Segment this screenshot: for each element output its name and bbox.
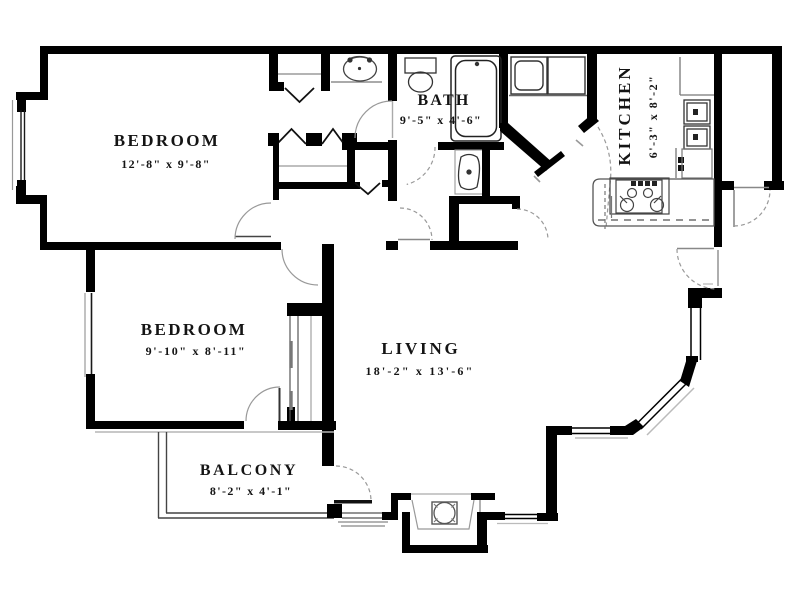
svg-text:6'-3" x 8'-2": 6'-3" x 8'-2" <box>646 75 660 158</box>
svg-text:18'-2" x 13'-6": 18'-2" x 13'-6" <box>366 364 475 378</box>
svg-text:9'-10" x 8'-11": 9'-10" x 8'-11" <box>146 344 247 358</box>
svg-text:LIVING: LIVING <box>381 339 460 358</box>
svg-text:BATH: BATH <box>418 92 471 109</box>
svg-text:8'-2" x 4'-1": 8'-2" x 4'-1" <box>210 484 292 498</box>
svg-text:BEDROOM: BEDROOM <box>141 320 248 339</box>
svg-text:9'-5" x 4'-6": 9'-5" x 4'-6" <box>400 113 482 127</box>
svg-text:KITCHEN: KITCHEN <box>615 64 634 165</box>
svg-text:BALCONY: BALCONY <box>200 462 298 479</box>
svg-text:12'-8" x 9'-8": 12'-8" x 9'-8" <box>121 157 211 171</box>
svg-text:BEDROOM: BEDROOM <box>114 131 221 150</box>
